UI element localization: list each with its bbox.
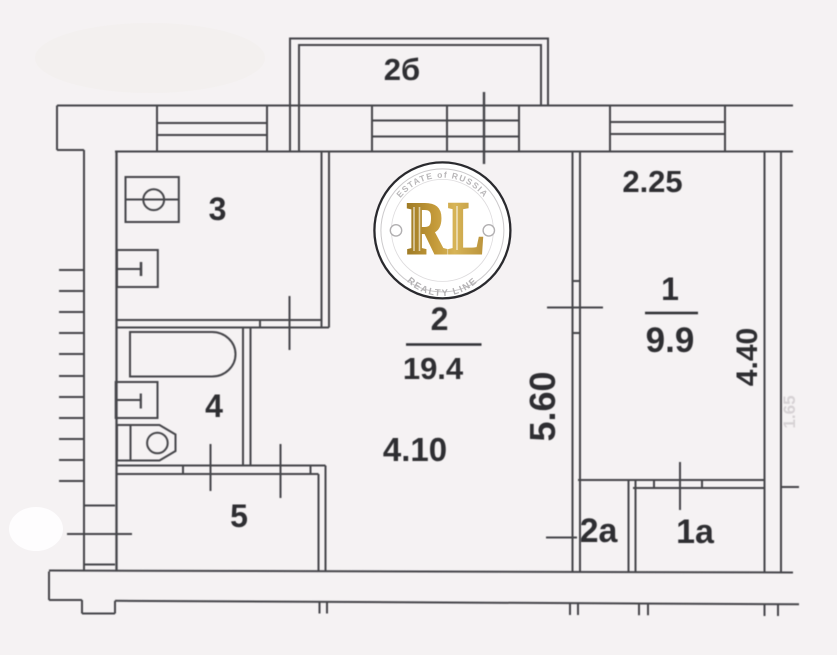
svg-text:5: 5 bbox=[230, 498, 248, 534]
svg-text:5.60: 5.60 bbox=[522, 371, 563, 441]
svg-text:4.40: 4.40 bbox=[731, 328, 764, 386]
svg-text:9.9: 9.9 bbox=[646, 321, 695, 360]
svg-text:2: 2 bbox=[431, 301, 449, 337]
svg-text:1a: 1a bbox=[676, 513, 715, 551]
svg-text:4: 4 bbox=[205, 388, 223, 424]
svg-text:3: 3 bbox=[209, 191, 227, 227]
svg-text:1.65: 1.65 bbox=[780, 395, 799, 428]
svg-text:2a: 2a bbox=[580, 512, 619, 550]
svg-text:2б: 2б bbox=[384, 52, 420, 87]
svg-text:4.10: 4.10 bbox=[383, 431, 447, 468]
svg-text:2.25: 2.25 bbox=[622, 164, 682, 199]
svg-text:19.4: 19.4 bbox=[403, 351, 464, 386]
svg-text:1: 1 bbox=[661, 271, 679, 307]
